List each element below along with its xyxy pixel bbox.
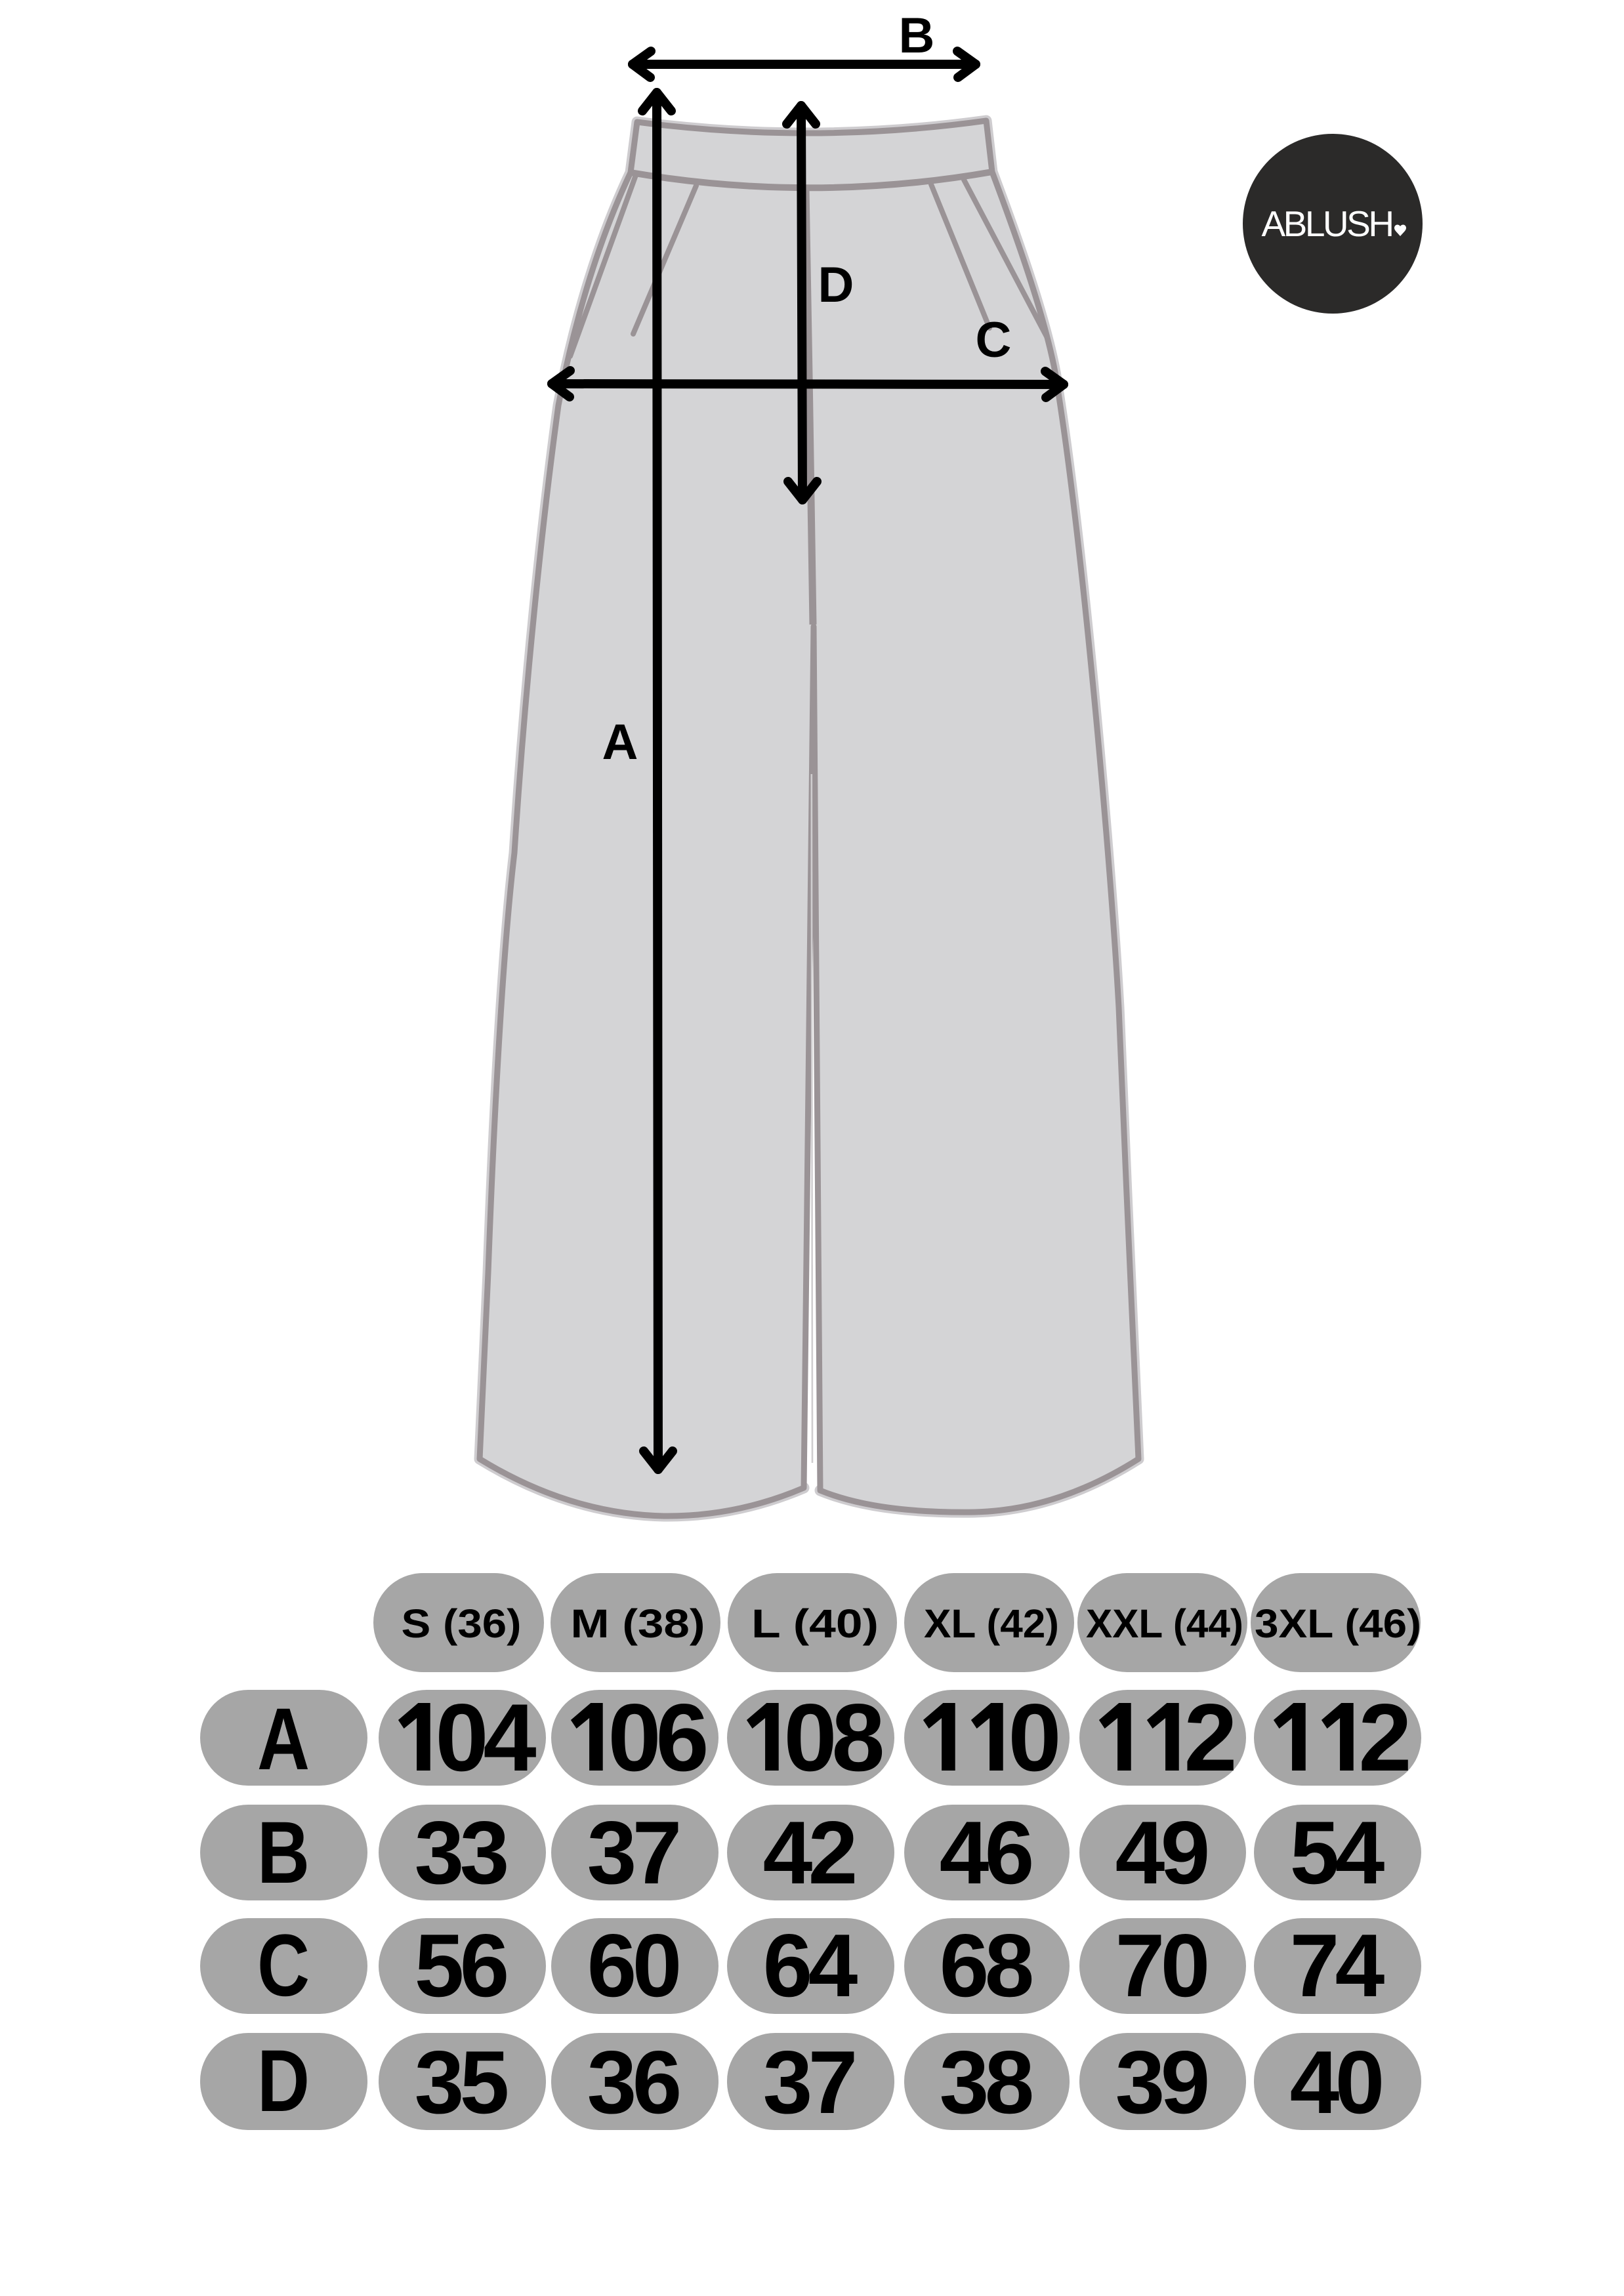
svg-text:M (38): M (38) [571,1601,705,1646]
svg-text:6: 6 [656,1684,709,1791]
svg-text:4: 4 [1335,1916,1385,2015]
svg-text:9: 9 [1161,1803,1211,1902]
svg-text:4: 4 [483,1684,536,1791]
svg-text:A: A [257,1691,310,1788]
svg-text:B: B [899,8,935,64]
svg-text:7: 7 [633,1803,682,1902]
svg-text:0: 0 [633,1916,682,2015]
svg-text:4: 4 [763,1803,813,1902]
svg-text:5: 5 [415,1916,465,2015]
svg-text:3: 3 [763,2032,813,2132]
svg-text:3: 3 [415,1803,465,1902]
svg-text:8: 8 [985,2032,1035,2132]
svg-text:3: 3 [940,2032,989,2132]
svg-text:5: 5 [460,2032,510,2132]
svg-text:3: 3 [587,1803,637,1902]
svg-text:0: 0 [1335,2032,1385,2132]
svg-text:6: 6 [633,2032,682,2132]
svg-text:XL (42): XL (42) [924,1601,1059,1646]
svg-text:5: 5 [1290,1803,1340,1902]
svg-text:0: 0 [783,1684,837,1791]
svg-text:3: 3 [460,1803,510,1902]
svg-text:4: 4 [1335,1803,1385,1902]
svg-text:2: 2 [1358,1684,1411,1791]
svg-text:6: 6 [940,1916,989,2015]
svg-text:B: B [257,1804,310,1902]
svg-text:2: 2 [808,1803,858,1902]
svg-text:4: 4 [1115,1803,1165,1902]
svg-text:XXL (44): XXL (44) [1086,1601,1243,1646]
svg-text:4: 4 [1290,2032,1340,2132]
svg-text:7: 7 [1115,1916,1165,2015]
svg-text:4: 4 [940,1803,989,1902]
svg-text:2: 2 [1184,1684,1237,1791]
svg-text:S (36): S (36) [402,1601,522,1646]
svg-text:C: C [257,1917,310,2015]
svg-text:0: 0 [1008,1684,1061,1791]
svg-text:6: 6 [985,1803,1035,1902]
svg-text:ABLUSH: ABLUSH [1261,203,1392,244]
svg-text:9: 9 [1161,2032,1211,2132]
svg-text:3: 3 [415,2032,465,2132]
svg-text:8: 8 [831,1684,885,1791]
svg-text:6: 6 [587,1916,637,2015]
svg-text:3XL (46): 3XL (46) [1255,1601,1421,1646]
svg-text:D: D [818,257,854,313]
svg-text:8: 8 [985,1916,1035,2015]
svg-text:D: D [257,2032,310,2130]
svg-text:0: 0 [435,1684,488,1791]
svg-text:C: C [976,312,1012,368]
svg-text:0: 0 [608,1684,661,1791]
svg-text:3: 3 [587,2032,637,2132]
svg-text:A: A [602,714,638,770]
svg-text:L (40): L (40) [751,1601,879,1646]
svg-text:7: 7 [1290,1916,1340,2015]
svg-text:6: 6 [460,1916,510,2015]
svg-text:7: 7 [808,2032,858,2132]
svg-text:3: 3 [1115,2032,1165,2132]
svg-text:4: 4 [808,1916,858,2015]
svg-text:6: 6 [763,1916,813,2015]
svg-text:0: 0 [1161,1916,1211,2015]
